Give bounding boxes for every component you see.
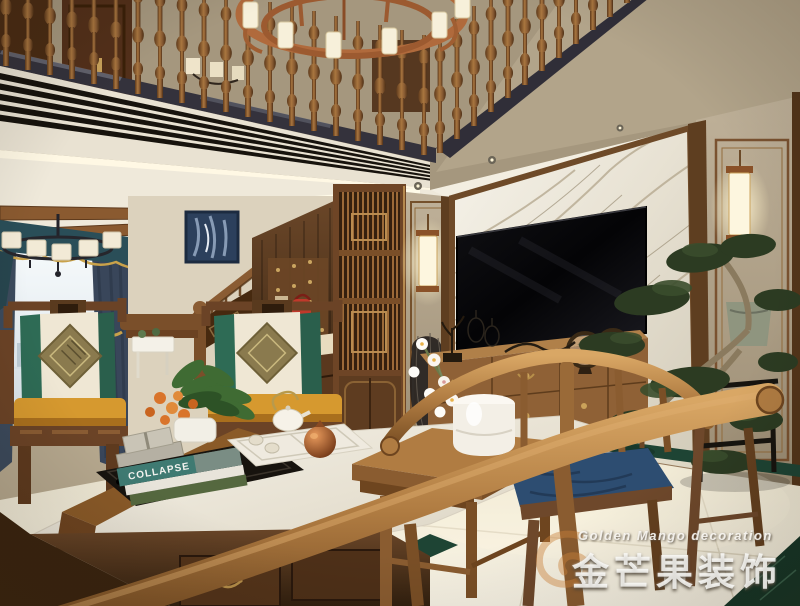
scene-canvas: COLLAPSE — [0, 0, 800, 606]
vignette — [0, 0, 800, 606]
living-room-rendering: COLLAPSE — [0, 0, 800, 606]
